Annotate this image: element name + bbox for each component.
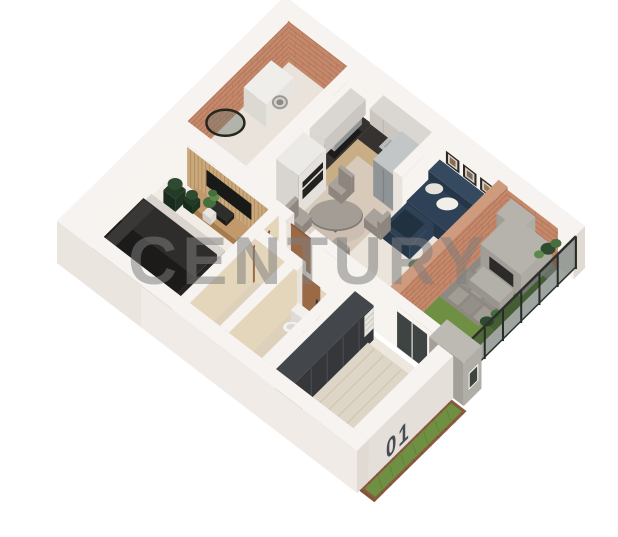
- floorplan-render-page: 01 CENTURY: [0, 0, 618, 537]
- floorplan-3d-view: 01: [0, 0, 618, 537]
- building-render-group: [57, 0, 585, 502]
